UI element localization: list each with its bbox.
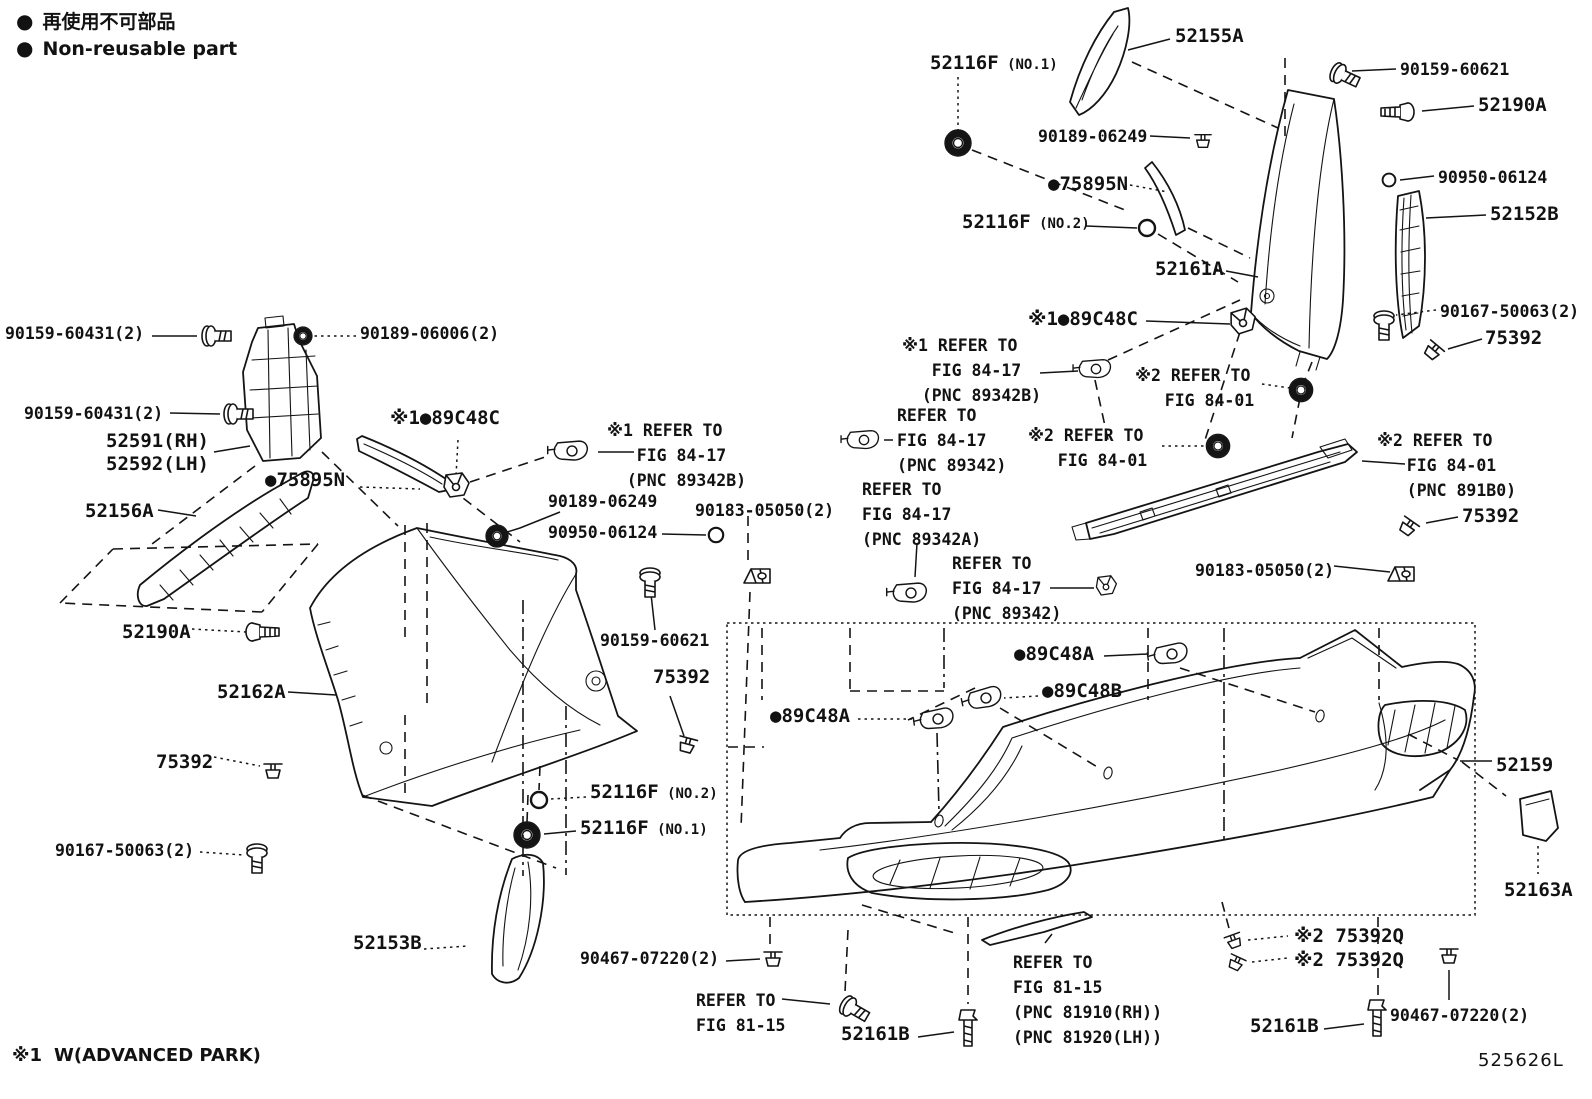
part-label: ※1●89C48C: [390, 407, 500, 430]
part-label: 75392: [1485, 327, 1542, 350]
part-label: ※2 REFER TO FIG 84-01: [1135, 363, 1254, 413]
part-label: 90159-60431(2): [5, 321, 144, 346]
part-label: 90950-06124: [1438, 165, 1547, 190]
part-label: 75392: [156, 751, 213, 774]
legend: ●再使用不可部品 ●Non-reusable part: [16, 8, 237, 62]
part-label: 52116F (NO.1): [930, 52, 1058, 77]
part-label: REFER TOFIG 84-17(PNC 89342): [952, 551, 1061, 626]
part-label: 90183-05050(2): [695, 498, 834, 523]
part-label: 52591(RH)52592(LH): [106, 430, 209, 476]
part-label: 52162A: [217, 681, 286, 704]
legend-text-ja: 再使用不可部品: [42, 11, 175, 33]
part-label: 90159-60621: [600, 628, 709, 653]
part-label: 75392: [653, 666, 710, 689]
part-label: REFER TOFIG 81-15(PNC 81910(RH))(PNC 819…: [1013, 950, 1162, 1050]
part-label: ●75895N: [1048, 173, 1128, 196]
part-label: ※2 REFER TO FIG 84-01 (PNC 891B0): [1377, 428, 1516, 503]
part-label: 52116F (NO.1): [580, 817, 708, 842]
part-label: REFER TOFIG 84-17(PNC 89342): [897, 403, 1006, 478]
part-label: 52161B: [1250, 1015, 1319, 1038]
part-label: 90467-07220(2): [1390, 1003, 1529, 1028]
part-label: ※1 REFER TO FIG 84-17 (PNC 89342B): [607, 418, 746, 493]
part-label: 52190A: [122, 621, 191, 644]
footnote-1: ※1W(ADVANCED PARK): [12, 1044, 402, 1067]
part-label: REFER TOFIG 84-17(PNC 89342A): [862, 477, 981, 552]
part-label: 90167-50063(2): [55, 838, 194, 863]
part-label: 52161B: [841, 1023, 910, 1046]
part-label: ●75895N: [265, 469, 345, 492]
part-label: ●89C48B: [1042, 680, 1122, 703]
part-label: 90189-06006(2): [360, 321, 499, 346]
part-label: 52159: [1496, 754, 1553, 777]
footnotes: ※1W(ADVANCED PARK) ※2W(KICK DOOR CONTROL…: [12, 998, 402, 1099]
part-label: 52190A: [1478, 94, 1547, 117]
part-label: 52152B: [1490, 203, 1559, 226]
part-label: 52116F (NO.2): [590, 781, 718, 806]
part-label: 90189-06249: [1038, 124, 1147, 149]
part-label: 52161A: [1155, 258, 1224, 281]
bullet-icon: ●: [16, 9, 33, 33]
part-label: 90159-60431(2): [24, 401, 163, 426]
part-label: ※2 REFER TO FIG 84-01: [1028, 423, 1147, 473]
part-label: 90167-50063(2): [1440, 299, 1579, 324]
footnote-text: W(ADVANCED PARK): [54, 1045, 261, 1066]
part-label: ※2 75392Q: [1294, 949, 1404, 972]
part-label: 52155A: [1175, 25, 1244, 48]
bullet-icon: ●: [16, 36, 33, 60]
legend-line-ja: ●再使用不可部品: [16, 8, 237, 35]
part-label: 90950-06124: [548, 520, 657, 545]
part-label: 90159-60621: [1400, 57, 1509, 82]
part-label: 90189-06249: [548, 489, 657, 514]
legend-line-en: ●Non-reusable part: [16, 35, 237, 62]
part-label: ●89C48A: [770, 705, 850, 728]
part-label: ※1 REFER TO FIG 84-17 (PNC 89342B): [902, 333, 1041, 408]
part-label: REFER TOFIG 81-15: [696, 988, 785, 1038]
labels-layer: 52155A52116F (NO.1)90159-6062152190A9018…: [0, 0, 1592, 1099]
part-label: 90183-05050(2): [1195, 558, 1334, 583]
part-label: 75392: [1462, 505, 1519, 528]
part-label: 90467-07220(2): [580, 946, 719, 971]
legend-text-en: Non-reusable part: [42, 38, 237, 60]
part-label: 52153B: [353, 932, 422, 955]
parts-catalog-diagram: 52155A52116F (NO.1)90159-6062152190A9018…: [0, 0, 1592, 1099]
part-label: ※1●89C48C: [1028, 308, 1138, 331]
part-label: ●89C48A: [1014, 643, 1094, 666]
footnote-marker: ※1: [12, 1045, 42, 1066]
part-label: ※2 75392Q: [1294, 925, 1404, 948]
figure-code: 525626L: [1478, 1050, 1564, 1071]
part-label: 52156A: [85, 500, 154, 523]
part-label: 52116F (NO.2): [962, 211, 1090, 236]
part-label: 52163A: [1504, 879, 1573, 902]
